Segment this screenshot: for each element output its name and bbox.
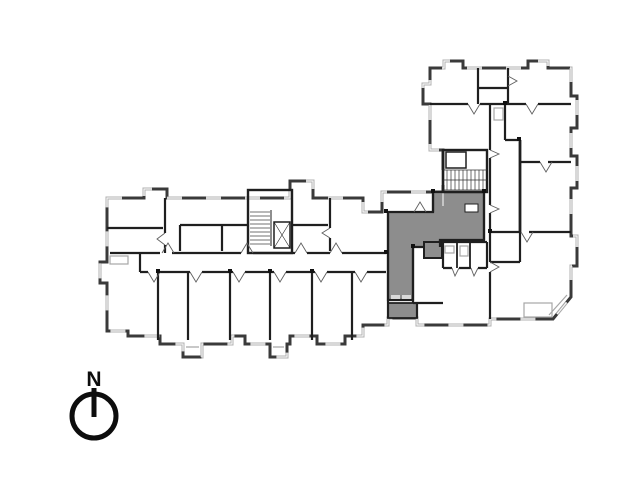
north-compass: N xyxy=(72,368,116,438)
floor-plan-drawing: N xyxy=(0,0,634,502)
floor-plan-page: N xyxy=(0,0,634,502)
highlighted-unit-annex[interactable] xyxy=(388,303,417,318)
compass-label: N xyxy=(86,368,101,391)
